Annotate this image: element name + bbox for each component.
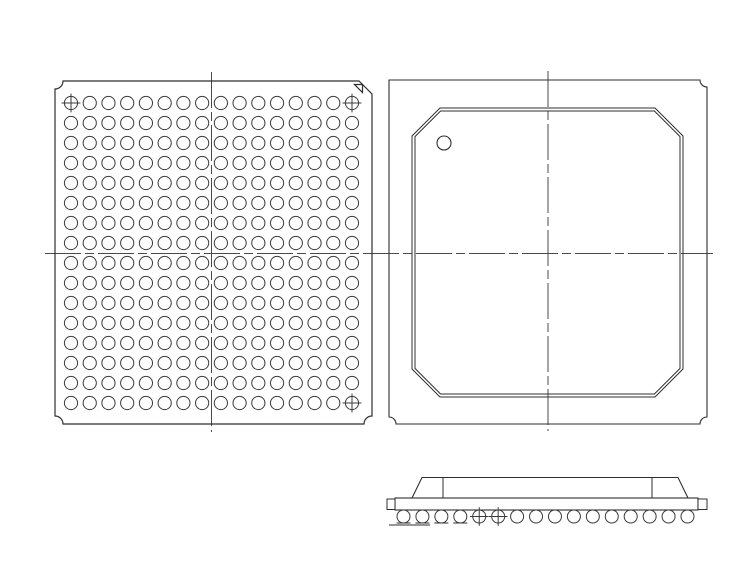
side-view-solder-ball <box>397 510 410 523</box>
solder-ball <box>252 296 265 309</box>
solder-ball <box>270 296 283 309</box>
solder-ball <box>308 296 321 309</box>
solder-ball <box>289 276 302 289</box>
solder-ball <box>158 136 171 149</box>
solder-ball <box>289 236 302 249</box>
solder-ball <box>233 316 246 329</box>
side-view-solder-ball <box>567 510 580 523</box>
solder-ball <box>270 116 283 129</box>
side-view-solder-ball <box>435 510 448 523</box>
solder-ball <box>139 296 152 309</box>
solder-ball <box>64 216 77 229</box>
solder-ball <box>289 176 302 189</box>
solder-ball <box>345 216 358 229</box>
solder-ball <box>252 156 265 169</box>
solder-ball <box>121 156 134 169</box>
solder-ball <box>102 136 115 149</box>
solder-ball <box>233 216 246 229</box>
solder-ball <box>64 336 77 349</box>
solder-ball <box>64 136 77 149</box>
solder-ball <box>252 316 265 329</box>
solder-ball <box>270 196 283 209</box>
substrate-body <box>395 498 698 510</box>
solder-ball <box>289 96 302 109</box>
solder-ball <box>308 276 321 289</box>
solder-ball <box>214 336 227 349</box>
solder-ball <box>196 316 209 329</box>
solder-ball <box>121 216 134 229</box>
solder-ball <box>214 156 227 169</box>
solder-ball <box>270 276 283 289</box>
solder-ball <box>308 256 321 269</box>
solder-ball <box>252 396 265 409</box>
solder-ball <box>83 356 96 369</box>
solder-ball <box>252 196 265 209</box>
solder-ball <box>308 176 321 189</box>
solder-ball <box>270 156 283 169</box>
solder-ball <box>196 116 209 129</box>
solder-ball <box>177 356 190 369</box>
solder-ball <box>233 396 246 409</box>
solder-ball <box>121 136 134 149</box>
solder-ball <box>289 216 302 229</box>
solder-ball <box>308 376 321 389</box>
solder-ball <box>196 216 209 229</box>
solder-ball <box>64 356 77 369</box>
solder-ball <box>102 316 115 329</box>
solder-ball <box>252 256 265 269</box>
solder-ball <box>289 296 302 309</box>
solder-ball <box>252 176 265 189</box>
solder-ball <box>289 136 302 149</box>
solder-ball <box>196 256 209 269</box>
solder-ball <box>270 336 283 349</box>
solder-ball <box>64 396 77 409</box>
solder-ball <box>270 176 283 189</box>
solder-ball <box>158 156 171 169</box>
solder-ball <box>158 276 171 289</box>
solder-ball <box>252 336 265 349</box>
solder-ball <box>345 256 358 269</box>
solder-ball <box>289 156 302 169</box>
solder-ball <box>233 156 246 169</box>
solder-ball <box>214 356 227 369</box>
solder-ball <box>270 316 283 329</box>
solder-ball <box>121 276 134 289</box>
solder-ball <box>327 96 340 109</box>
solder-ball <box>158 96 171 109</box>
solder-ball <box>308 336 321 349</box>
pin1-corner-triangle-icon <box>355 85 363 93</box>
solder-ball <box>308 396 321 409</box>
side-view-solder-ball <box>681 510 694 523</box>
solder-ball <box>345 376 358 389</box>
solder-ball <box>233 276 246 289</box>
solder-ball <box>139 176 152 189</box>
solder-ball <box>214 376 227 389</box>
solder-ball <box>327 356 340 369</box>
solder-ball <box>308 116 321 129</box>
solder-ball <box>214 116 227 129</box>
solder-ball <box>289 116 302 129</box>
solder-ball <box>139 216 152 229</box>
solder-ball <box>327 396 340 409</box>
solder-ball <box>83 196 96 209</box>
mold-cap-profile <box>412 478 688 499</box>
solder-ball <box>64 236 77 249</box>
solder-ball <box>345 156 358 169</box>
solder-ball <box>345 116 358 129</box>
solder-ball <box>139 116 152 129</box>
side-view-solder-ball <box>586 510 599 523</box>
solder-ball <box>102 336 115 349</box>
solder-ball <box>139 356 152 369</box>
drawing-canvas <box>0 0 754 576</box>
solder-ball <box>289 256 302 269</box>
solder-ball <box>102 216 115 229</box>
solder-ball <box>270 236 283 249</box>
solder-ball <box>327 296 340 309</box>
solder-ball <box>177 336 190 349</box>
solder-ball <box>214 96 227 109</box>
solder-ball <box>177 296 190 309</box>
solder-ball <box>252 96 265 109</box>
solder-ball <box>158 176 171 189</box>
solder-ball <box>196 236 209 249</box>
solder-ball <box>345 276 358 289</box>
solder-ball <box>83 136 96 149</box>
substrate-left-edge <box>387 499 395 510</box>
side-view-solder-ball <box>662 510 675 523</box>
solder-ball <box>327 236 340 249</box>
side-view-solder-ball <box>416 510 429 523</box>
substrate-right-edge <box>698 499 707 510</box>
solder-ball <box>177 196 190 209</box>
solder-ball <box>233 196 246 209</box>
solder-ball <box>139 136 152 149</box>
solder-ball <box>139 336 152 349</box>
solder-ball <box>158 216 171 229</box>
solder-ball <box>252 356 265 369</box>
side-view-solder-ball <box>511 510 524 523</box>
solder-ball <box>177 316 190 329</box>
solder-ball <box>121 396 134 409</box>
solder-ball <box>252 376 265 389</box>
solder-ball <box>270 96 283 109</box>
side-view-solder-ball <box>605 510 618 523</box>
solder-ball <box>345 356 358 369</box>
solder-ball <box>83 256 96 269</box>
solder-ball <box>139 396 152 409</box>
solder-ball <box>102 356 115 369</box>
solder-ball <box>177 236 190 249</box>
solder-ball <box>327 336 340 349</box>
solder-ball <box>121 236 134 249</box>
solder-ball <box>64 116 77 129</box>
solder-ball <box>196 276 209 289</box>
side-view-solder-ball <box>530 510 543 523</box>
solder-ball <box>345 236 358 249</box>
solder-ball <box>327 156 340 169</box>
solder-ball <box>345 336 358 349</box>
solder-ball <box>83 96 96 109</box>
solder-ball <box>214 396 227 409</box>
solder-ball <box>83 296 96 309</box>
solder-ball <box>233 136 246 149</box>
solder-ball <box>327 316 340 329</box>
solder-ball <box>214 256 227 269</box>
solder-ball <box>233 356 246 369</box>
solder-ball <box>102 276 115 289</box>
solder-ball <box>252 236 265 249</box>
solder-ball <box>289 316 302 329</box>
solder-ball <box>64 376 77 389</box>
solder-ball <box>158 296 171 309</box>
solder-ball <box>308 236 321 249</box>
solder-ball <box>64 296 77 309</box>
solder-ball <box>214 236 227 249</box>
solder-ball <box>121 256 134 269</box>
solder-ball <box>308 96 321 109</box>
solder-ball <box>158 256 171 269</box>
solder-ball <box>121 176 134 189</box>
solder-ball <box>139 96 152 109</box>
solder-ball <box>121 116 134 129</box>
solder-ball <box>177 156 190 169</box>
solder-ball <box>177 96 190 109</box>
solder-ball <box>121 336 134 349</box>
solder-ball <box>121 196 134 209</box>
solder-ball <box>196 376 209 389</box>
solder-ball <box>270 356 283 369</box>
solder-ball <box>308 216 321 229</box>
bottom-view-ball-grid <box>55 81 372 424</box>
solder-ball <box>64 156 77 169</box>
solder-ball <box>308 356 321 369</box>
solder-ball <box>102 116 115 129</box>
solder-ball <box>196 136 209 149</box>
solder-ball <box>214 276 227 289</box>
solder-ball <box>214 296 227 309</box>
solder-ball <box>308 196 321 209</box>
solder-ball <box>345 136 358 149</box>
side-view-profile <box>387 478 707 526</box>
solder-ball <box>158 236 171 249</box>
solder-ball <box>214 136 227 149</box>
package-drawing-svg <box>0 0 754 576</box>
solder-ball <box>327 196 340 209</box>
solder-ball <box>158 356 171 369</box>
solder-ball <box>214 176 227 189</box>
solder-ball <box>177 136 190 149</box>
solder-ball <box>196 356 209 369</box>
solder-ball <box>233 296 246 309</box>
solder-ball <box>196 96 209 109</box>
solder-ball <box>121 96 134 109</box>
solder-ball <box>327 256 340 269</box>
side-view-solder-ball <box>454 510 467 523</box>
solder-ball <box>345 296 358 309</box>
solder-ball <box>64 176 77 189</box>
solder-ball <box>158 376 171 389</box>
solder-ball <box>83 376 96 389</box>
solder-ball <box>158 196 171 209</box>
solder-ball <box>233 336 246 349</box>
solder-ball <box>233 176 246 189</box>
solder-ball <box>196 296 209 309</box>
solder-ball <box>233 116 246 129</box>
solder-ball <box>139 316 152 329</box>
solder-ball <box>270 216 283 229</box>
solder-ball <box>308 156 321 169</box>
solder-ball <box>233 236 246 249</box>
solder-ball <box>102 376 115 389</box>
solder-ball <box>121 316 134 329</box>
side-view-solder-ball <box>548 510 561 523</box>
solder-ball <box>102 176 115 189</box>
solder-ball <box>233 96 246 109</box>
solder-ball <box>102 156 115 169</box>
solder-ball <box>139 256 152 269</box>
solder-ball <box>196 176 209 189</box>
solder-ball <box>102 296 115 309</box>
solder-ball <box>139 236 152 249</box>
solder-ball <box>308 316 321 329</box>
solder-ball <box>270 376 283 389</box>
solder-ball <box>196 396 209 409</box>
solder-ball <box>214 316 227 329</box>
solder-ball <box>289 336 302 349</box>
solder-ball <box>252 116 265 129</box>
solder-ball <box>327 116 340 129</box>
solder-ball <box>102 236 115 249</box>
solder-ball <box>196 196 209 209</box>
solder-ball <box>270 136 283 149</box>
solder-ball <box>83 116 96 129</box>
solder-ball <box>64 316 77 329</box>
solder-ball <box>327 216 340 229</box>
solder-ball <box>158 116 171 129</box>
solder-ball <box>121 296 134 309</box>
solder-ball <box>102 256 115 269</box>
solder-ball <box>177 176 190 189</box>
solder-ball <box>102 396 115 409</box>
solder-ball <box>139 196 152 209</box>
solder-ball <box>139 156 152 169</box>
solder-ball <box>83 216 96 229</box>
solder-ball <box>345 316 358 329</box>
solder-ball <box>289 356 302 369</box>
solder-ball <box>308 136 321 149</box>
solder-ball <box>289 196 302 209</box>
solder-ball <box>233 376 246 389</box>
solder-ball <box>233 256 246 269</box>
solder-ball <box>83 336 96 349</box>
solder-ball <box>177 116 190 129</box>
solder-ball <box>102 196 115 209</box>
solder-ball <box>139 276 152 289</box>
solder-ball <box>121 356 134 369</box>
solder-ball <box>177 256 190 269</box>
side-view-solder-ball <box>624 510 637 523</box>
solder-ball <box>345 196 358 209</box>
solder-ball <box>158 396 171 409</box>
solder-ball <box>252 136 265 149</box>
solder-ball <box>83 156 96 169</box>
solder-ball <box>83 276 96 289</box>
solder-ball <box>327 276 340 289</box>
solder-ball <box>196 336 209 349</box>
solder-ball <box>214 196 227 209</box>
solder-ball <box>252 216 265 229</box>
solder-ball <box>327 136 340 149</box>
solder-ball <box>83 396 96 409</box>
solder-ball <box>177 376 190 389</box>
solder-ball <box>64 196 77 209</box>
pin1-dimple-marker <box>437 136 451 150</box>
solder-ball <box>327 176 340 189</box>
solder-ball <box>64 256 77 269</box>
solder-ball <box>196 156 209 169</box>
solder-ball <box>121 376 134 389</box>
side-view-solder-ball <box>643 510 656 523</box>
solder-ball <box>289 376 302 389</box>
solder-ball <box>177 396 190 409</box>
solder-ball <box>64 276 77 289</box>
solder-ball <box>83 316 96 329</box>
solder-ball <box>158 336 171 349</box>
solder-ball <box>289 396 302 409</box>
solder-ball <box>158 316 171 329</box>
solder-ball <box>214 216 227 229</box>
solder-ball <box>83 236 96 249</box>
solder-ball <box>102 96 115 109</box>
solder-ball <box>177 216 190 229</box>
solder-ball <box>345 176 358 189</box>
solder-ball <box>139 376 152 389</box>
solder-ball <box>327 376 340 389</box>
solder-ball <box>177 276 190 289</box>
solder-ball <box>83 176 96 189</box>
solder-ball <box>270 396 283 409</box>
solder-ball <box>252 276 265 289</box>
solder-ball <box>270 256 283 269</box>
bottom-view-outline <box>55 81 372 424</box>
